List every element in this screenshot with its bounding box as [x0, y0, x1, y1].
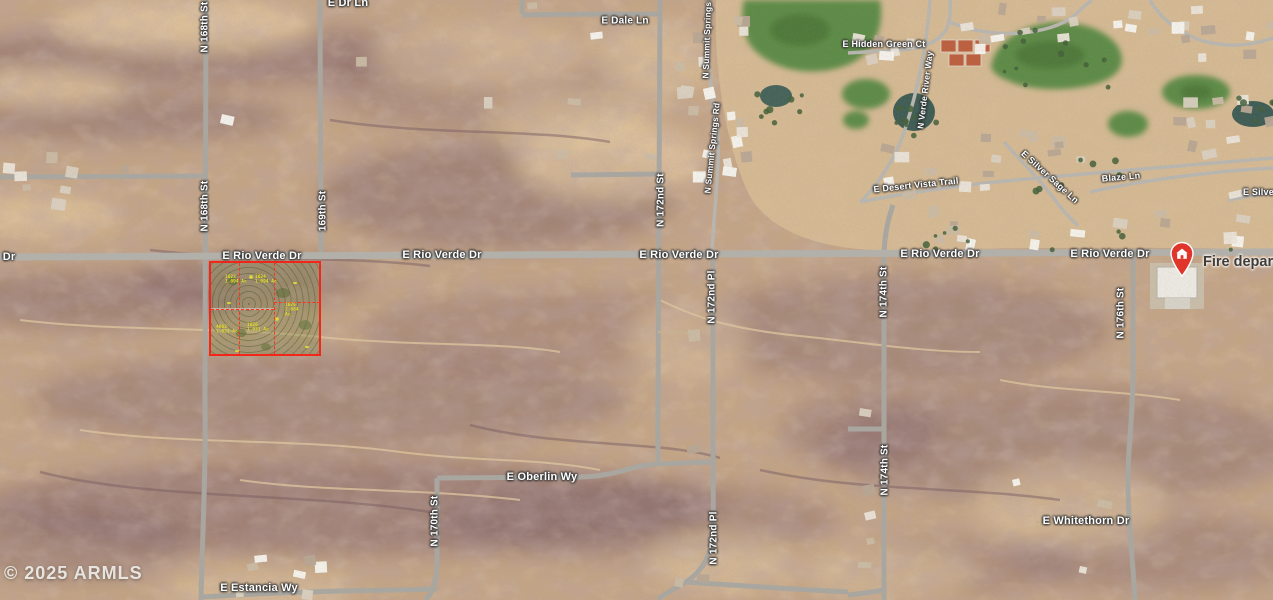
map-canvas[interactable]: 16231.094 Ac 16241.094 Ac 16252.084 Ac 4… — [0, 0, 1273, 600]
parcel-boundary: 16231.094 Ac 16241.094 Ac 16252.084 Ac 4… — [209, 261, 321, 356]
pin-body — [1171, 243, 1193, 277]
lot-label: 46031.031 Ac — [216, 325, 238, 334]
lot-label: 16252.084 Ac — [285, 303, 302, 317]
fire-department-pin[interactable] — [1167, 241, 1197, 277]
lot-line — [274, 263, 275, 354]
lot-line — [211, 309, 274, 310]
lot-label: 16231.094 Ac — [225, 275, 247, 284]
satellite-imagery-layer — [0, 0, 1273, 600]
lot-label: 16261.031 Ac — [247, 323, 269, 332]
armls-watermark: © 2025 ARMLS — [4, 563, 143, 584]
grain-overlay — [0, 0, 1273, 600]
poi-label-fire-department: Fire depart — [1203, 254, 1273, 270]
lot-line — [274, 302, 320, 303]
